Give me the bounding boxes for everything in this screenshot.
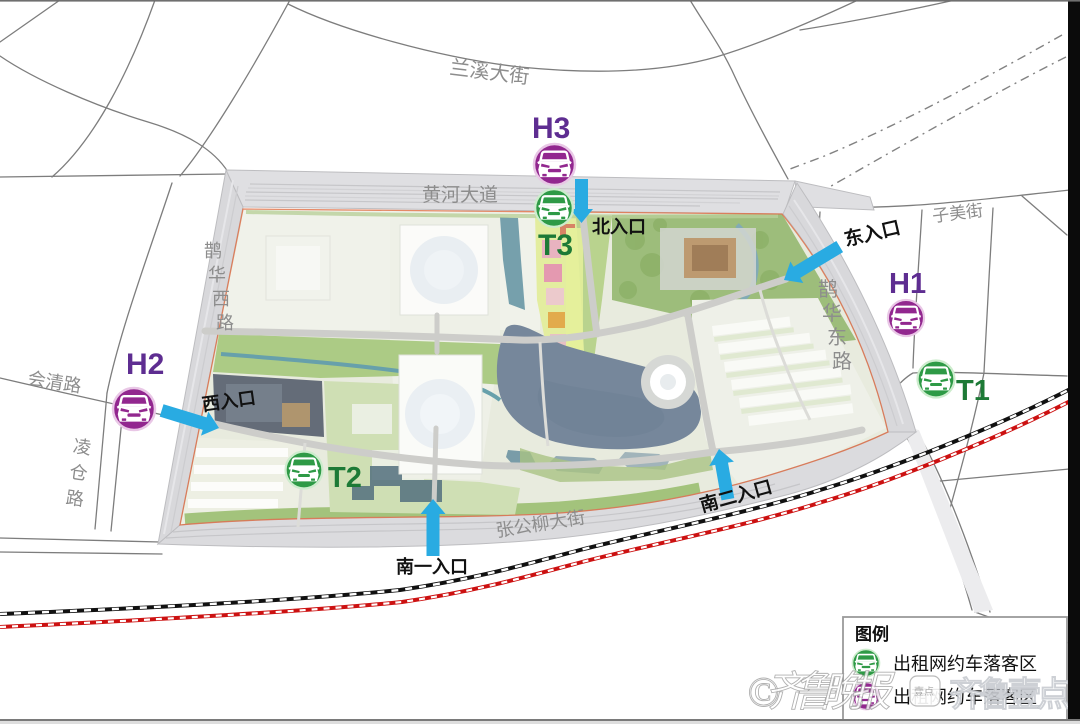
svg-text:仓: 仓 <box>68 462 89 484</box>
svg-text:凌: 凌 <box>72 436 93 458</box>
svg-text:©齐鲁晚报: ©齐鲁晚报 <box>747 670 896 716</box>
svg-text:鹊: 鹊 <box>204 241 222 261</box>
svg-text:西: 西 <box>212 289 230 309</box>
svg-text:H2: H2 <box>126 348 164 381</box>
svg-text:壹点: 壹点 <box>914 685 934 698</box>
svg-text:鹊: 鹊 <box>818 278 838 301</box>
svg-text:出租网约车落客区: 出租网约车落客区 <box>893 654 1037 674</box>
svg-text:路: 路 <box>832 350 852 373</box>
svg-text:华: 华 <box>822 302 842 325</box>
svg-text:北入口: 北入口 <box>592 217 646 237</box>
svg-text:东: 东 <box>827 326 847 349</box>
svg-text:齐鲁壹点: 齐鲁壹点 <box>949 676 1071 714</box>
svg-text:H1: H1 <box>889 268 926 300</box>
svg-text:路: 路 <box>216 313 234 333</box>
svg-text:T1: T1 <box>956 375 990 407</box>
svg-text:H3: H3 <box>532 112 570 145</box>
svg-text:T3: T3 <box>538 229 573 262</box>
svg-text:路: 路 <box>65 488 86 510</box>
svg-text:图例: 图例 <box>855 624 889 644</box>
svg-text:华: 华 <box>208 265 226 285</box>
svg-text:黄河大道: 黄河大道 <box>422 184 498 206</box>
svg-text:南一入口: 南一入口 <box>396 556 468 577</box>
svg-text:T2: T2 <box>328 462 362 494</box>
